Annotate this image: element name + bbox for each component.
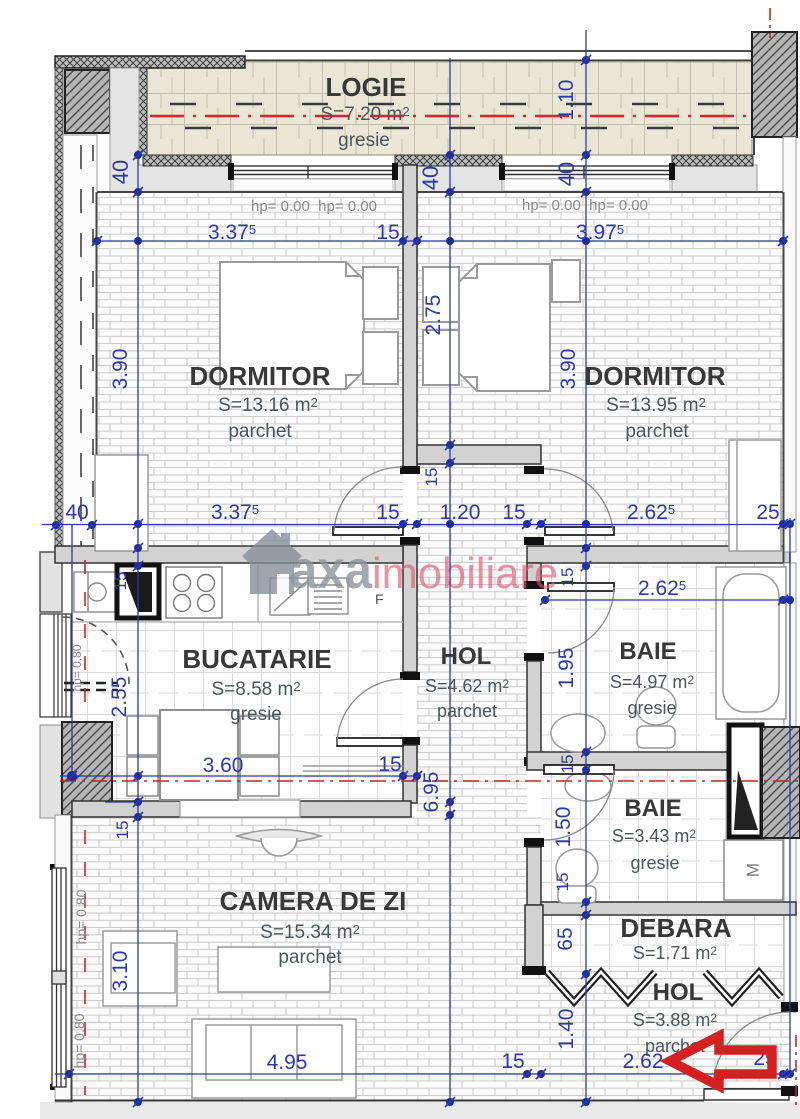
svg-text:3.90: 3.90 bbox=[557, 349, 580, 390]
svg-text:HOL: HOL bbox=[441, 643, 492, 670]
svg-text:15: 15 bbox=[553, 873, 572, 892]
svg-text:axa: axa bbox=[290, 540, 373, 600]
svg-text:15: 15 bbox=[113, 821, 132, 840]
svg-text:3.60: 3.60 bbox=[203, 754, 244, 777]
svg-text:gresie: gresie bbox=[630, 853, 679, 873]
svg-text:F: F bbox=[375, 591, 384, 607]
svg-text:M: M bbox=[743, 863, 762, 877]
svg-text:2.55: 2.55 bbox=[108, 677, 131, 718]
svg-text:1.95: 1.95 bbox=[555, 648, 578, 689]
svg-text:4.95: 4.95 bbox=[267, 1051, 308, 1074]
svg-text:6.95: 6.95 bbox=[420, 772, 443, 813]
svg-text:BAIE: BAIE bbox=[619, 638, 676, 665]
svg-text:DORMITOR: DORMITOR bbox=[189, 361, 330, 391]
svg-text:gresie: gresie bbox=[627, 698, 676, 718]
svg-text:1.50: 1.50 bbox=[552, 807, 575, 848]
svg-text:hp= 0.00 hp= 0.00: hp= 0.00 hp= 0.00 bbox=[251, 198, 377, 215]
svg-text:15: 15 bbox=[376, 221, 399, 244]
svg-text:S=7.20 m2: S=7.20 m2 bbox=[320, 104, 409, 125]
svg-text:S=13.16 m2: S=13.16 m2 bbox=[218, 395, 318, 416]
svg-text:15: 15 bbox=[501, 1050, 524, 1073]
svg-text:BUCATARIE: BUCATARIE bbox=[182, 644, 331, 674]
svg-text:S=4.62 m2: S=4.62 m2 bbox=[425, 676, 510, 696]
svg-text:15: 15 bbox=[378, 753, 401, 776]
svg-text:parchet: parchet bbox=[437, 701, 497, 721]
svg-text:DEBARA: DEBARA bbox=[620, 913, 731, 943]
svg-text:S=3.43 m2: S=3.43 m2 bbox=[612, 826, 697, 846]
svg-text:15: 15 bbox=[422, 468, 441, 487]
svg-text:HOL: HOL bbox=[653, 979, 704, 1006]
svg-text:65: 65 bbox=[554, 927, 577, 950]
svg-text:hp= 0.00 hp= 0.00: hp= 0.00 hp= 0.00 bbox=[522, 197, 648, 214]
svg-text:S=1.71 m2: S=1.71 m2 bbox=[633, 943, 718, 963]
svg-text:1.20: 1.20 bbox=[440, 501, 481, 524]
svg-text:LOGIE: LOGIE bbox=[326, 72, 407, 102]
svg-text:hp= 0.80: hp= 0.80 bbox=[71, 1013, 87, 1068]
svg-text:imobiliare: imobiliare bbox=[372, 549, 558, 598]
svg-text:15: 15 bbox=[558, 755, 577, 774]
svg-text:parchet: parchet bbox=[278, 947, 342, 968]
svg-text:40: 40 bbox=[108, 160, 133, 184]
svg-text:15: 15 bbox=[502, 501, 525, 524]
svg-text:gresie: gresie bbox=[230, 704, 282, 725]
svg-text:S=3.88 m2: S=3.88 m2 bbox=[633, 1010, 718, 1030]
svg-text:1.10: 1.10 bbox=[555, 80, 578, 121]
svg-text:DORMITOR: DORMITOR bbox=[584, 361, 725, 391]
svg-text:40: 40 bbox=[65, 501, 88, 524]
svg-text:40: 40 bbox=[554, 162, 579, 186]
svg-text:S=15.34 m2: S=15.34 m2 bbox=[260, 922, 360, 943]
svg-text:40: 40 bbox=[418, 166, 443, 190]
svg-text:2.75: 2.75 bbox=[422, 295, 445, 336]
svg-text:1.40: 1.40 bbox=[555, 1009, 578, 1050]
svg-text:parchet: parchet bbox=[625, 421, 689, 442]
svg-text:S=13.95 m2: S=13.95 m2 bbox=[606, 395, 706, 416]
svg-text:S=4.97 m2: S=4.97 m2 bbox=[610, 672, 695, 692]
svg-text:S=8.58 m2: S=8.58 m2 bbox=[211, 679, 300, 700]
svg-text:hp= 0.80: hp= 0.80 bbox=[73, 889, 89, 944]
svg-text:BAIE: BAIE bbox=[624, 795, 681, 822]
svg-text:15: 15 bbox=[111, 572, 130, 591]
svg-text:15: 15 bbox=[558, 568, 577, 587]
svg-text:parchet: parchet bbox=[228, 421, 292, 442]
svg-text:3.90: 3.90 bbox=[109, 349, 132, 390]
svg-text:CAMERA DE ZI: CAMERA DE ZI bbox=[220, 886, 407, 916]
svg-text:3.10: 3.10 bbox=[109, 951, 132, 992]
svg-text:25: 25 bbox=[756, 501, 779, 524]
svg-text:hp= 0.80: hp= 0.80 bbox=[70, 644, 84, 691]
svg-text:15: 15 bbox=[376, 501, 399, 524]
svg-text:gresie: gresie bbox=[338, 130, 390, 151]
